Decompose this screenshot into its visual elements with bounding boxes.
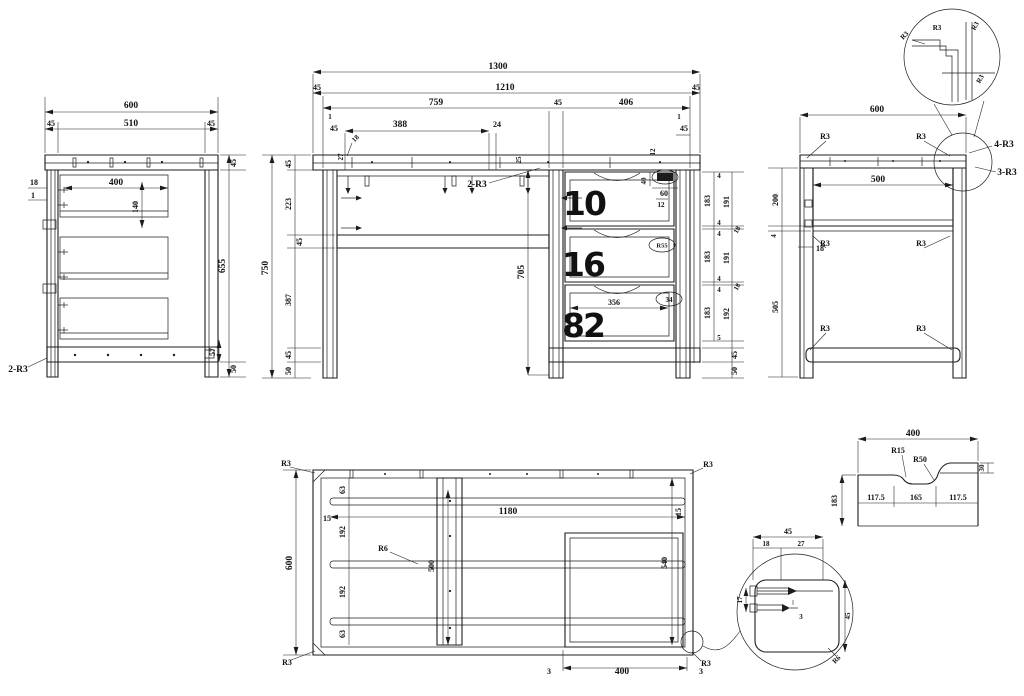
bv-dim-600: 600 (285, 556, 295, 571)
lv-dim-140: 140 (131, 201, 140, 213)
fv-dim-705: 705 (517, 265, 527, 280)
bv-r3-tl: R3 (281, 459, 291, 468)
fv-handle-40: 40 (640, 177, 648, 185)
fv-dim-1300: 1300 (489, 62, 508, 72)
rv-r3-5: R3 (820, 324, 830, 333)
pd-dim-165: 165 (910, 493, 922, 502)
cad-drawing: 600 45 510 45 18 1 400 140 45 655 57 50 … (0, 0, 1024, 696)
pd-dim-400: 400 (906, 429, 921, 439)
fv-ci-4b: 4 (717, 219, 721, 227)
fv-dim-45r: 45 (692, 83, 700, 92)
pd-dim-183: 183 (830, 495, 839, 507)
fv-ci-5: 5 (717, 334, 721, 342)
lv-dim-57: 57 (208, 348, 217, 356)
bv-callout-r6: R6 (378, 544, 388, 553)
profile-detail-dimensions: 400 R15 R50 30 117.5 165 117.5 183 (830, 429, 994, 526)
left-side-view: 600 45 510 45 18 1 400 140 45 655 57 50 … (8, 97, 246, 377)
leg-detail-reference-circle (681, 631, 703, 653)
fv-co-191b: 191 (722, 252, 731, 264)
rail-dot-symbols (74, 354, 175, 356)
bv-dim-400: 400 (615, 667, 630, 677)
fv-co-18b: 18 (732, 282, 743, 292)
fv-handle-12: 12 (658, 201, 666, 209)
lv-dim-45t: 45 (229, 159, 238, 167)
fv-chain-45c: 45 (284, 351, 293, 359)
fv-callout-2r3: 2-R3 (467, 180, 487, 190)
fv-ci-4d: 4 (717, 275, 721, 283)
pd-r50: R50 (913, 455, 927, 464)
drawer-box-outline (565, 533, 683, 647)
front-view: R55 34 10 16 82 (261, 62, 744, 378)
right-view-dimensions: 600 500 200 4 505 18 R3 R3 R3 R3 R3 R3 (768, 101, 1017, 377)
fv-ci-183b: 183 (703, 251, 712, 263)
cd-r3-4: R3 (975, 73, 986, 85)
fv-dim-759: 759 (429, 98, 444, 108)
cam-fitting-symbols (43, 187, 214, 358)
rv-dim-500: 500 (871, 175, 886, 185)
lv-dim-50: 50 (229, 365, 238, 373)
ld-dim-17: 17 (736, 596, 744, 604)
pd-dim-30: 30 (978, 464, 986, 472)
bv-top-fittings (350, 470, 633, 478)
lv-dim-655: 655 (218, 259, 228, 274)
bv-r3-tr: R3 (703, 460, 713, 469)
bv-chain-63a: 63 (338, 486, 347, 494)
fv-chain-45b: 45 (295, 238, 304, 246)
kneehole-rail (337, 235, 549, 248)
lock-symbol (657, 173, 673, 181)
left-view-drawers (60, 175, 168, 339)
fv-dim-1-left: 1 (328, 113, 332, 121)
rv-r3-6: R3 (916, 324, 926, 333)
ld-dim-27: 27 (798, 540, 806, 548)
fv-stamp-34: 34 (666, 296, 674, 304)
bv-dim-500: 500 (427, 560, 436, 572)
fv-dim-45m: 45 (554, 98, 562, 107)
bv-dim-540: 540 (660, 557, 669, 569)
fv-chain-223: 223 (284, 198, 293, 210)
corner-detail-view: R3 R3 R3 R3 (899, 9, 1000, 105)
rv-callout-4r3: 4-R3 (994, 140, 1014, 150)
drawer-number-2: 16 (562, 245, 605, 284)
lv-dim-510: 510 (124, 119, 139, 129)
screw-detail (750, 586, 833, 612)
fv-ci-183a: 183 (703, 195, 712, 207)
drawer-number-1: 10 (563, 184, 606, 223)
fv-dim-406: 406 (619, 98, 634, 108)
fv-co-45: 45 (730, 351, 739, 359)
lv-dim-45l: 45 (47, 119, 55, 128)
pd-dim-117r: 117.5 (949, 493, 967, 502)
fv-stamp-r55: R55 (656, 243, 668, 250)
ld-r6: R6 (831, 653, 843, 665)
lv-dim-1: 1 (31, 191, 35, 200)
bv-chain-63b: 63 (338, 630, 347, 638)
fv-dim-27: 27 (337, 153, 345, 161)
rv-dim-4: 4 (770, 234, 778, 238)
fv-chain-50: 50 (284, 367, 293, 375)
cd-r3-1: R3 (899, 29, 911, 41)
fv-dim-45l: 45 (313, 83, 321, 92)
bv-dim-3l: 3 (547, 667, 551, 676)
lv-dim-400: 400 (109, 178, 124, 188)
cd-r3-2: R3 (933, 24, 942, 32)
pd-dim-117l: 117.5 (867, 493, 885, 502)
fv-co-192: 192 (722, 308, 731, 320)
fv-ci-4e: 4 (717, 286, 721, 294)
rv-r3-2: R3 (916, 132, 926, 141)
ld-dim-18: 18 (763, 540, 771, 548)
top-panel-ticks (352, 157, 661, 168)
fv-dim-18: 18 (350, 133, 361, 144)
fv-co-191a: 191 (722, 196, 731, 208)
fv-co-50: 50 (730, 367, 739, 375)
ld-dim-45t: 45 (784, 527, 792, 536)
bv-dim-15r: 15 (674, 508, 683, 516)
fv-dim-1-right: 1 (677, 113, 681, 121)
front-view-dimensions: 1300 45 1210 45 759 45 406 1 45 388 24 1… (261, 62, 744, 378)
bv-dim-3r: 3 (699, 667, 703, 676)
pd-r15: R15 (891, 446, 905, 455)
rv-top-ticks (830, 157, 941, 166)
bv-chain-192b: 192 (338, 586, 347, 598)
fv-ci-4a: 4 (717, 172, 721, 180)
bv-dim-15l: 15 (323, 514, 331, 523)
bv-dim-1180: 1180 (499, 507, 518, 517)
lv-dim-600: 600 (124, 101, 139, 111)
leg-detail-view: 45 18 27 17 3 45 R6 (736, 527, 853, 670)
ld-dim-3: 3 (799, 613, 803, 621)
lv-callout-2r3: 2-R3 (8, 365, 28, 375)
cd-r3-3: R3 (970, 20, 981, 32)
drawing-sheet: 600 45 510 45 18 1 400 140 45 655 57 50 … (0, 0, 1024, 696)
bottom-view: 600 63 192 192 63 1180 15 15 R6 500 540 … (281, 459, 740, 677)
fv-dim-25: 25 (515, 156, 523, 164)
fv-dim-12: 12 (649, 148, 657, 156)
lv-dim-45r: 45 (207, 119, 215, 128)
rv-r3-4: R3 (916, 239, 926, 248)
fv-dim-45-leg-right: 45 (680, 124, 688, 133)
rv-r3-1: R3 (820, 132, 830, 141)
top-screw-symbols (73, 158, 203, 167)
fv-ci-4c: 4 (717, 230, 721, 238)
rv-dim-505: 505 (771, 301, 780, 313)
right-side-view: 600 500 200 4 505 18 R3 R3 R3 R3 R3 R3 (768, 101, 1017, 378)
fv-dim-45-leg-left: 45 (330, 124, 338, 133)
lv-dim-18: 18 (30, 178, 38, 187)
rv-dim-600: 600 (870, 105, 885, 115)
detail-reference-circle (934, 133, 992, 191)
rv-dim-200: 200 (771, 194, 780, 206)
fv-dim-24: 24 (493, 120, 501, 129)
rv-callout-3r3: 3-R3 (997, 168, 1017, 178)
fv-chain-387: 387 (284, 294, 293, 306)
ld-dim-45r: 45 (844, 612, 852, 620)
fv-chain-45a: 45 (284, 160, 293, 168)
fv-dim-388: 388 (393, 120, 408, 130)
drawer-number-3: 82 (562, 306, 604, 345)
bv-r3-bl: R3 (282, 658, 292, 667)
bv-chain-192a: 192 (338, 526, 347, 538)
bv-r3-br: R3 (701, 659, 711, 668)
screw-symbols (341, 176, 582, 231)
rv-r3-3: R3 (820, 239, 830, 248)
fv-ci-183c: 183 (703, 307, 712, 319)
fv-handle-60: 60 (660, 189, 668, 198)
bottom-rail (806, 348, 960, 362)
profile-detail-view: 400 R15 R50 30 117.5 165 117.5 183 (830, 429, 994, 526)
fv-dim-1210: 1210 (496, 83, 515, 93)
fv-dim-750: 750 (261, 261, 271, 276)
fv-dim-356: 356 (608, 298, 620, 307)
